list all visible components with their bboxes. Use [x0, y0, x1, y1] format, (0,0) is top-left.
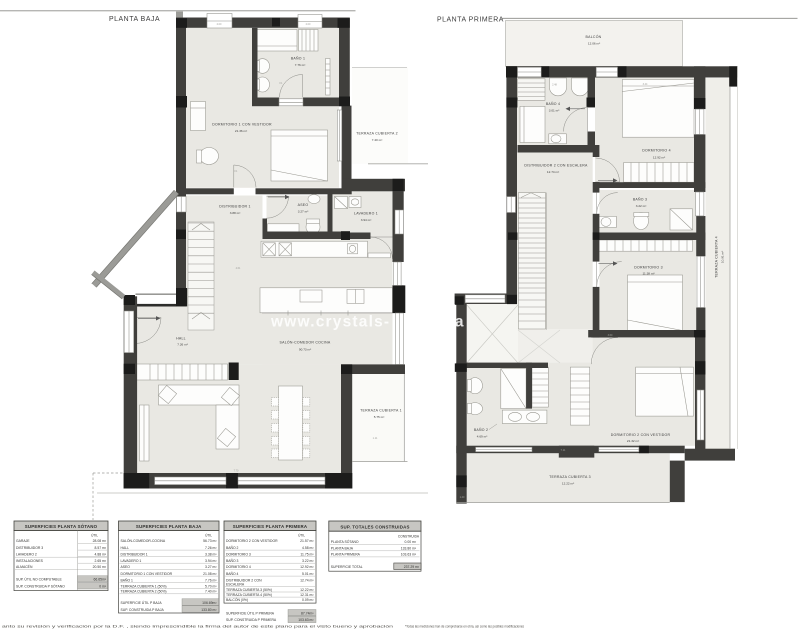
svg-text:12.22 m²: 12.22 m² [300, 588, 314, 592]
svg-text:7.26 m²: 7.26 m² [177, 342, 188, 346]
svg-text:BAÑO 1: BAÑO 1 [291, 56, 305, 61]
svg-text:ALMACÉN: ALMACÉN [16, 564, 33, 569]
svg-text:BAÑO 4: BAÑO 4 [546, 101, 560, 106]
svg-text:2.00: 2.00 [217, 23, 222, 26]
svg-text:3.38 m²: 3.38 m² [205, 552, 217, 556]
svg-text:INSTALACIONES: INSTALACIONES [16, 559, 44, 563]
svg-text:BAÑO 1: BAÑO 1 [121, 577, 134, 582]
svg-text:LAVADERO 2: LAVADERO 2 [16, 552, 37, 556]
svg-text:7.70: 7.70 [234, 470, 239, 473]
svg-text:TERRAZA CUBIERTA 3 (50%): TERRAZA CUBIERTA 3 (50%) [226, 588, 272, 592]
svg-text:11.38 m²: 11.38 m² [643, 271, 655, 275]
svg-text:SUPERFICIES PLANTA SÓTANO: SUPERFICIES PLANTA SÓTANO [25, 524, 98, 529]
svg-text:ASEO: ASEO [121, 565, 131, 569]
svg-text:PLANTA BAJA: PLANTA BAJA [331, 546, 354, 550]
svg-text:3.22 m²: 3.22 m² [636, 204, 647, 208]
svg-text:7.76 m²: 7.76 m² [205, 578, 217, 582]
svg-text:TERRAZA CUBIERTA 3: TERRAZA CUBIERTA 3 [549, 475, 591, 479]
svg-text:*Todas las mediciones han de c: *Todas las mediciones han de comprobarse… [405, 625, 524, 629]
svg-text:DISTRIBUIDOR 1: DISTRIBUIDOR 1 [219, 205, 251, 209]
svg-text:7.40 m²: 7.40 m² [372, 138, 383, 142]
svg-text:ASEO: ASEO [298, 203, 309, 207]
svg-text:SUP. CONSTRUIDA P BAJA: SUP. CONSTRUIDA P BAJA [121, 608, 165, 612]
svg-text:0.09 m²: 0.09 m² [302, 598, 314, 602]
svg-text:anto su revisión y verificació: anto su revisión y verificación por la D… [2, 625, 393, 629]
svg-text:7.40 m²: 7.40 m² [205, 590, 217, 594]
svg-text:21.57 m²: 21.57 m² [300, 539, 314, 543]
svg-text:3.01 m²: 3.01 m² [549, 109, 560, 113]
svg-text:ÚTIL: ÚTIL [91, 533, 98, 538]
svg-text:DORMITORIO 1 CON VESTIDOR: DORMITORIO 1 CON VESTIDOR [212, 123, 272, 127]
svg-text:3.88 m²: 3.88 m² [230, 211, 241, 215]
svg-text:BALCÓN: BALCÓN [586, 34, 602, 39]
svg-text:CONSTRUIDA: CONSTRUIDA [398, 534, 420, 538]
svg-text:SALÓN-COMEDOR-COCINA: SALÓN-COMEDOR-COCINA [121, 538, 166, 543]
svg-text:133.80 m²: 133.80 m² [201, 608, 217, 612]
svg-text:1.11: 1.11 [373, 437, 378, 440]
svg-text:SUPERFICIE TOTAL: SUPERFICIE TOTAL [331, 565, 363, 569]
svg-text:12.92 m²: 12.92 m² [300, 565, 314, 569]
svg-text:90.73 m²: 90.73 m² [299, 347, 311, 351]
svg-text:12.74 m²: 12.74 m² [547, 170, 559, 174]
svg-text:12.74 m²: 12.74 m² [300, 578, 314, 582]
svg-text:SUP. ÚTIL NO COMPUTABLE: SUP. ÚTIL NO COMPUTABLE [16, 577, 62, 582]
svg-text:DORMITORIO 4: DORMITORIO 4 [642, 149, 671, 153]
svg-text:3.27 m²: 3.27 m² [205, 565, 217, 569]
svg-text:SUPERFICIES PLANTA BAJA: SUPERFICIES PLANTA BAJA [136, 524, 202, 529]
svg-text:GARAJE: GARAJE [16, 539, 30, 543]
svg-text:BAÑO 4: BAÑO 4 [226, 571, 239, 576]
svg-text:DISTRIBUIDOR 3: DISTRIBUIDOR 3 [16, 546, 43, 550]
svg-text:5.01 m²: 5.01 m² [302, 572, 314, 576]
svg-text:BAÑO 3: BAÑO 3 [633, 197, 647, 202]
svg-text:PLANTA BAJA: PLANTA BAJA [109, 16, 160, 23]
svg-text:3.44: 3.44 [643, 83, 648, 86]
svg-text:103.63 m²: 103.63 m² [298, 618, 314, 622]
svg-text:20.50 m²: 20.50 m² [93, 565, 107, 569]
svg-text:PLANTA PRIMERA: PLANTA PRIMERA [331, 553, 361, 557]
svg-text:4.61: 4.61 [236, 267, 241, 270]
svg-text:DORMITORIO 2 CON VESTIDOR: DORMITORIO 2 CON VESTIDOR [226, 539, 278, 543]
svg-text:LAVADERO 1: LAVADERO 1 [354, 212, 378, 216]
svg-text:5.70 m²: 5.70 m² [205, 585, 217, 589]
svg-text:3.60: 3.60 [608, 334, 613, 337]
svg-text:106.69m²: 106.69m² [202, 601, 217, 605]
svg-text:BALCÓN (0%): BALCÓN (0%) [226, 597, 248, 602]
svg-text:DORMITORIO 3: DORMITORIO 3 [634, 266, 663, 270]
svg-text:2.00: 2.00 [306, 23, 311, 26]
svg-text:LAVADERO 1: LAVADERO 1 [121, 559, 142, 563]
svg-text:DORMITORIO 1 CON VESTIDOR: DORMITORIO 1 CON VESTIDOR [121, 572, 173, 576]
svg-text:11.75 m²: 11.75 m² [300, 552, 314, 556]
svg-text:0.00 m²: 0.00 m² [405, 540, 417, 544]
svg-text:2.48: 2.48 [552, 83, 557, 86]
svg-text:10.91 m²: 10.91 m² [721, 251, 725, 263]
svg-text:TERRAZA CUBIERTA 1: TERRAZA CUBIERTA 1 [360, 409, 402, 413]
svg-text:4.69 m²: 4.69 m² [477, 435, 488, 439]
svg-text:237.29 m²: 237.29 m² [404, 565, 420, 569]
svg-text:3.27 m²: 3.27 m² [298, 209, 309, 213]
svg-text:DISTRIBUIDOR 1: DISTRIBUIDOR 1 [121, 552, 148, 556]
svg-text:SALÓN-COMEDOR COCINA: SALÓN-COMEDOR COCINA [280, 340, 331, 345]
svg-text:PLANTA PRIMERA: PLANTA PRIMERA [437, 16, 504, 23]
svg-text:4.58 m²: 4.58 m² [302, 546, 314, 550]
svg-text:HALL: HALL [121, 546, 130, 550]
svg-text:21.32 m²: 21.32 m² [627, 439, 639, 443]
svg-text:0 m²: 0 m² [99, 585, 107, 589]
svg-text:SUPERFICIES PLANTA PRIMERA: SUPERFICIES PLANTA PRIMERA [233, 524, 308, 529]
svg-text:7.11: 7.11 [561, 449, 566, 452]
svg-text:TERRAZA CUBIERTA 4 (50%): TERRAZA CUBIERTA 4 (50%) [226, 593, 272, 597]
svg-text:TERRAZA CUBIERTA 4: TERRAZA CUBIERTA 4 [715, 236, 719, 278]
svg-text:12.31 m²: 12.31 m² [300, 593, 314, 597]
svg-text:ÚTIL: ÚTIL [298, 533, 305, 538]
svg-text:SUP. CONSTRUIDA P PRIMERA: SUP. CONSTRUIDA P PRIMERA [226, 618, 277, 622]
svg-text:BAÑO 2: BAÑO 2 [226, 545, 239, 550]
svg-text:3.94 m²: 3.94 m² [205, 559, 217, 563]
svg-text:87.74m²: 87.74m² [301, 611, 314, 615]
svg-text:12.92 m²: 12.92 m² [653, 155, 665, 159]
svg-text:21.08 m²: 21.08 m² [203, 572, 217, 576]
svg-text:8.57 m²: 8.57 m² [95, 546, 107, 550]
svg-text:TERRAZA CUBIERTA 1 (50%): TERRAZA CUBIERTA 1 (50%) [121, 585, 167, 589]
svg-text:SUPERFICIE ÚTIL P PRIMERA: SUPERFICIE ÚTIL P PRIMERA [226, 610, 275, 615]
svg-text:56.73 m²: 56.73 m² [203, 539, 217, 543]
svg-text:4.88 m²: 4.88 m² [95, 552, 107, 556]
svg-text:ÚTIL: ÚTIL [205, 533, 212, 538]
svg-text:21.36 m²: 21.36 m² [235, 129, 247, 133]
svg-text:12.06 m²: 12.06 m² [588, 42, 600, 46]
svg-text:66.65m²: 66.65m² [94, 578, 107, 582]
svg-text:BAÑO 2: BAÑO 2 [474, 427, 488, 432]
svg-text:12.22 m²: 12.22 m² [562, 481, 574, 485]
svg-text:ESCALERA: ESCALERA [226, 582, 245, 586]
svg-text:TERRAZA CUBIERTA 2: TERRAZA CUBIERTA 2 [356, 132, 398, 136]
svg-text:1.40: 1.40 [460, 496, 465, 499]
svg-text:SUP. CONSTRUIDA P SÓTANO: SUP. CONSTRUIDA P SÓTANO [16, 584, 65, 589]
svg-text:SUP. TOTALES CONSTRUIDAS: SUP. TOTALES CONSTRUIDAS [340, 524, 409, 529]
svg-text:PLANTA SÓTANO: PLANTA SÓTANO [331, 539, 359, 544]
svg-text:DISTRIBUIDOR 2 CON ESCALERA: DISTRIBUIDOR 2 CON ESCALERA [524, 164, 588, 168]
svg-text:SUPERFICIE ÚTIL P BAJA: SUPERFICIE ÚTIL P BAJA [121, 600, 163, 605]
svg-text:3.94 m²: 3.94 m² [361, 218, 372, 222]
svg-text:BAÑO 3: BAÑO 3 [226, 558, 239, 563]
svg-text:DORMITORIO 4: DORMITORIO 4 [226, 565, 251, 569]
svg-text:DORMITORIO 3: DORMITORIO 3 [226, 552, 251, 556]
svg-text:3.22 m²: 3.22 m² [302, 559, 314, 563]
svg-text:2.65 m²: 2.65 m² [95, 559, 107, 563]
svg-text:HALL: HALL [176, 337, 186, 341]
svg-text:103.63 m²: 103.63 m² [401, 553, 417, 557]
svg-text:7.76 m²: 7.76 m² [295, 63, 306, 67]
svg-text:TERRAZA CUBIERTA 2 (50%): TERRAZA CUBIERTA 2 (50%) [121, 590, 167, 594]
svg-text:133.80 m²: 133.80 m² [401, 546, 417, 550]
svg-text:7.26 m²: 7.26 m² [205, 546, 217, 550]
svg-text:5.75 m²: 5.75 m² [374, 415, 385, 419]
svg-text:28.08 m²: 28.08 m² [93, 539, 107, 543]
svg-text:DORMITORIO 2 CON VESTIDOR: DORMITORIO 2 CON VESTIDOR [611, 433, 671, 437]
